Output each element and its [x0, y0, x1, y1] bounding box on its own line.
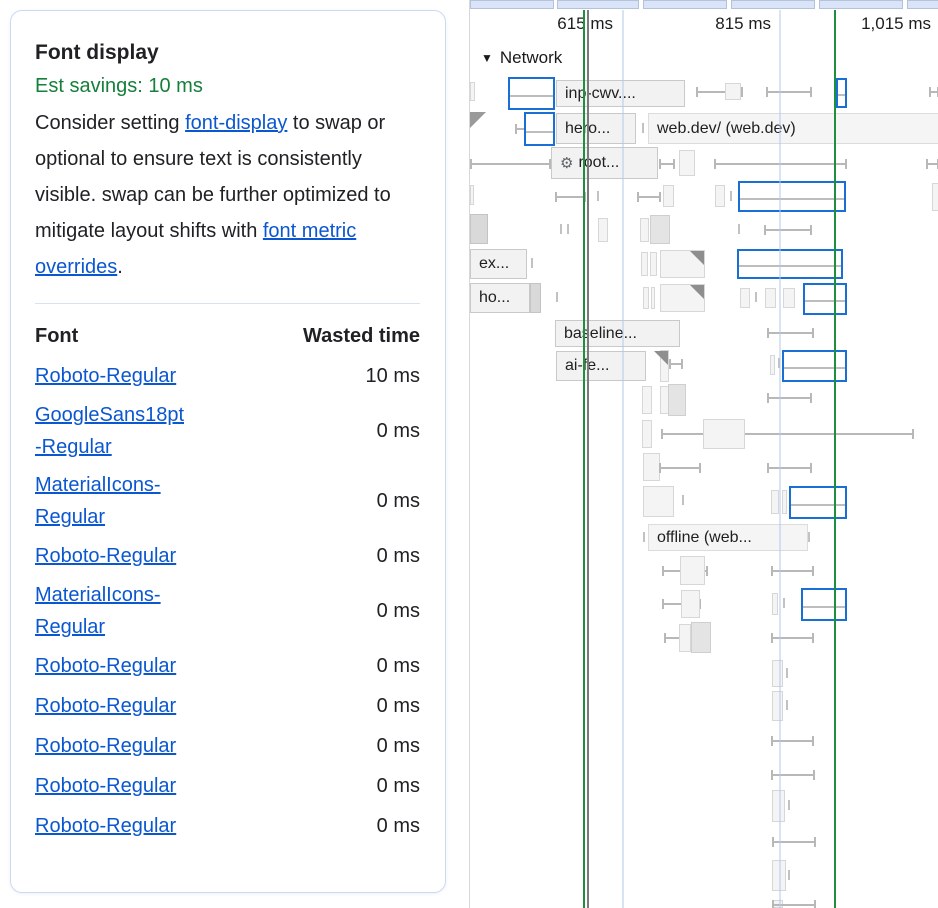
- font-name-link[interactable]: Roboto-Regular: [35, 775, 176, 797]
- font-name-link[interactable]: MaterialIcons- Regular: [35, 584, 161, 638]
- request-label[interactable]: web.dev/ (web.dev): [648, 113, 938, 144]
- performance-timeline-track[interactable]: 615 ms815 ms1,015 ms ▼ Network inp-cwv..…: [469, 0, 938, 908]
- request-label-text: baseline...: [564, 325, 637, 343]
- network-tick: [786, 668, 788, 678]
- network-tick: [808, 532, 810, 542]
- wasted-time-value: 0 ms: [377, 420, 420, 443]
- wasted-time-value: 0 ms: [377, 655, 420, 678]
- whisker-cap: [926, 159, 928, 169]
- network-request-bar[interactable]: [643, 486, 674, 517]
- whisker-cap: [771, 736, 773, 746]
- font-table-row: Roboto-Regular10 ms: [35, 356, 420, 396]
- insight-description: Consider setting font-display to swap or…: [35, 105, 420, 285]
- whisker-cap: [767, 463, 769, 473]
- font-name-link[interactable]: Roboto-Regular: [35, 735, 176, 757]
- network-request-bar[interactable]: [703, 419, 745, 449]
- network-tick: [755, 292, 757, 302]
- request-label[interactable]: hero...: [556, 113, 636, 144]
- network-request-bar[interactable]: [643, 287, 649, 309]
- request-label[interactable]: offline (web...: [648, 524, 808, 551]
- whisker-cap: [812, 736, 814, 746]
- network-request-bar[interactable]: [470, 214, 488, 244]
- request-label[interactable]: ai-fe...: [556, 351, 646, 381]
- request-duration-line: [805, 300, 845, 302]
- font-table-row: GoogleSans18pt -Regular0 ms: [35, 396, 420, 466]
- overview-strip-box: [557, 0, 639, 9]
- whisker-cap: [681, 359, 683, 369]
- font-name-link[interactable]: Roboto-Regular: [35, 365, 176, 387]
- network-request-whisker[interactable]: [768, 332, 813, 334]
- request-label[interactable]: ⚙root...: [551, 147, 658, 179]
- whisker-cap: [845, 159, 847, 169]
- whisker-cap: [661, 429, 663, 439]
- font-column-header: Font: [35, 316, 78, 356]
- highlighted-request-box[interactable]: [836, 78, 847, 108]
- network-request-bar[interactable]: [772, 593, 778, 615]
- font-name-link[interactable]: GoogleSans18pt -Regular: [35, 404, 184, 458]
- whisker-cap: [810, 393, 812, 403]
- collapse-triangle-icon[interactable]: ▼: [481, 51, 493, 65]
- performance-marker-line: [834, 10, 836, 908]
- whisker-cap: [767, 328, 769, 338]
- network-tick: [597, 191, 599, 201]
- whisker-cap: [706, 566, 708, 576]
- network-request-whisker[interactable]: [765, 229, 811, 231]
- network-request-whisker[interactable]: [471, 163, 550, 165]
- whisker-cap: [772, 900, 774, 908]
- network-request-whisker[interactable]: [662, 433, 913, 435]
- whisker-cap: [662, 566, 664, 576]
- network-tick: [783, 598, 785, 608]
- time-gridline: [622, 10, 624, 908]
- network-request-bar[interactable]: [932, 183, 938, 211]
- network-tick: [643, 532, 645, 542]
- ruler-time-label: 815 ms: [715, 14, 771, 34]
- gear-icon: ⚙: [560, 154, 573, 172]
- network-request-bar[interactable]: [650, 215, 670, 244]
- network-track-label: Network: [500, 48, 562, 68]
- font-table-row: Roboto-Regular0 ms: [35, 536, 420, 576]
- network-request-bar[interactable]: [530, 283, 541, 313]
- request-label-text: ex...: [479, 255, 509, 273]
- network-request-bar[interactable]: [660, 284, 705, 312]
- warning-corner-icon: [690, 251, 704, 265]
- description-text: .: [117, 256, 123, 278]
- wasted-time-value: 0 ms: [377, 815, 420, 838]
- network-track-header[interactable]: ▼ Network: [481, 48, 562, 68]
- whisker-cap: [771, 633, 773, 643]
- network-request-bar[interactable]: [640, 218, 649, 242]
- whisker-cap: [637, 192, 639, 202]
- network-request-bar[interactable]: [660, 350, 669, 382]
- whisker-cap: [555, 192, 557, 202]
- clipped-request-triangle: [470, 112, 486, 128]
- network-request-bar[interactable]: [725, 83, 741, 100]
- divider: [35, 303, 420, 304]
- whisker-cap: [673, 159, 675, 169]
- highlighted-request-box[interactable]: [737, 249, 843, 279]
- whisker-cap: [699, 463, 701, 473]
- network-request-bar[interactable]: [715, 185, 725, 207]
- overview-strip-box: [907, 0, 938, 9]
- network-request-bar[interactable]: [668, 384, 686, 416]
- warning-corner-icon: [654, 351, 668, 365]
- whisker-cap: [812, 633, 814, 643]
- request-duration-line: [526, 131, 553, 133]
- whisker-cap: [659, 192, 661, 202]
- whisker-cap: [812, 328, 814, 338]
- font-table-row: MaterialIcons- Regular0 ms: [35, 576, 420, 646]
- whisker-cap: [772, 837, 774, 847]
- overview-strip-box: [731, 0, 815, 9]
- whisker-cap: [814, 900, 816, 908]
- request-label-text: web.dev/ (web.dev): [657, 120, 796, 138]
- overview-strip-box: [643, 0, 727, 9]
- network-request-bar[interactable]: [681, 590, 700, 618]
- network-request-bar[interactable]: [642, 386, 652, 414]
- network-request-bar[interactable]: [642, 420, 652, 448]
- highlighted-request-box[interactable]: [782, 350, 847, 382]
- whisker-cap: [714, 159, 716, 169]
- network-request-bar[interactable]: [650, 252, 657, 276]
- font-name-link[interactable]: Roboto-Regular: [35, 695, 176, 717]
- font-display-insight-card: Font display Est savings: 10 ms Consider…: [10, 10, 446, 893]
- network-request-whisker[interactable]: [660, 163, 674, 165]
- network-tick: [786, 700, 788, 710]
- network-request-whisker[interactable]: [660, 467, 700, 469]
- font-table-header: Font Wasted time: [35, 316, 420, 356]
- font-table-row: Roboto-Regular0 ms: [35, 766, 420, 806]
- network-request-bar[interactable]: [663, 185, 674, 207]
- request-label-text: inp-cwv....: [565, 85, 636, 103]
- wasted-time-value: 0 ms: [377, 490, 420, 513]
- request-label[interactable]: inp-cwv....: [556, 80, 685, 107]
- font-table-row: MaterialIcons- Regular0 ms: [35, 466, 420, 536]
- request-duration-line: [803, 606, 845, 608]
- whisker-cap: [929, 87, 931, 97]
- highlighted-request-box[interactable]: [789, 486, 847, 519]
- network-request-whisker[interactable]: [638, 196, 660, 198]
- network-request-whisker[interactable]: [768, 397, 811, 399]
- network-request-bar[interactable]: [771, 490, 779, 514]
- whisker-cap: [696, 87, 698, 97]
- request-duration-line: [739, 265, 841, 267]
- network-request-whisker[interactable]: [767, 91, 811, 93]
- network-request-bar[interactable]: [598, 218, 608, 242]
- whisker-cap: [741, 87, 743, 97]
- whisker-cap: [764, 225, 766, 235]
- request-duration-line: [838, 94, 845, 96]
- wasted-time-value: 0 ms: [377, 545, 420, 568]
- highlighted-request-box[interactable]: [508, 77, 555, 110]
- whisker-cap: [659, 463, 661, 473]
- wasted-time-value: 10 ms: [366, 365, 420, 388]
- whisker-cap: [813, 770, 815, 780]
- whisker-cap: [659, 159, 661, 169]
- timestamp-marker-line: [587, 10, 589, 908]
- wasted-time-column-header: Wasted time: [303, 316, 420, 356]
- whisker-cap: [515, 124, 517, 134]
- network-request-bar[interactable]: [772, 691, 783, 721]
- whisker-cap: [810, 463, 812, 473]
- whisker-cap: [912, 429, 914, 439]
- network-tick: [531, 258, 533, 268]
- network-request-bar[interactable]: [651, 287, 655, 309]
- font-table: Roboto-Regular10 msGoogleSans18pt -Regul…: [35, 356, 420, 846]
- network-request-bar[interactable]: [783, 288, 795, 308]
- font-table-row: Roboto-Regular0 ms: [35, 646, 420, 686]
- wasted-time-value: 0 ms: [377, 695, 420, 718]
- network-request-bar[interactable]: [643, 453, 660, 481]
- request-label[interactable]: ex...: [470, 249, 527, 279]
- wasted-time-value: 0 ms: [377, 775, 420, 798]
- devtools-performance-panel: Font display Est savings: 10 ms Consider…: [0, 0, 938, 908]
- network-request-bar[interactable]: [641, 252, 648, 276]
- font-table-row: Roboto-Regular0 ms: [35, 726, 420, 766]
- network-request-bar[interactable]: [470, 82, 475, 101]
- network-request-bar[interactable]: [660, 250, 705, 278]
- whisker-cap: [814, 837, 816, 847]
- request-duration-line: [740, 198, 844, 200]
- whisker-cap: [771, 770, 773, 780]
- network-tick: [730, 191, 732, 201]
- network-tick: [738, 224, 740, 234]
- network-request-whisker[interactable]: [556, 196, 585, 198]
- ruler-time-label: 615 ms: [557, 14, 613, 34]
- whisker-cap: [767, 393, 769, 403]
- network-request-bar[interactable]: [470, 185, 474, 205]
- insight-title: Font display: [35, 37, 420, 69]
- description-text: Consider setting: [35, 112, 185, 134]
- highlighted-request-box[interactable]: [801, 588, 847, 621]
- network-request-bar[interactable]: [691, 622, 711, 653]
- network-request-whisker[interactable]: [768, 467, 811, 469]
- ruler-time-label: 1,015 ms: [861, 14, 931, 34]
- warning-corner-icon: [690, 285, 704, 299]
- font-name-link[interactable]: Roboto-Regular: [35, 655, 176, 677]
- font-table-row: Roboto-Regular0 ms: [35, 806, 420, 846]
- network-tick: [560, 224, 562, 234]
- whisker-cap: [766, 87, 768, 97]
- wasted-time-value: 0 ms: [377, 600, 420, 623]
- overview-strip-box: [819, 0, 903, 9]
- estimated-savings: Est savings: 10 ms: [35, 69, 420, 103]
- font-name-link[interactable]: Roboto-Regular: [35, 815, 176, 837]
- performance-marker-line: [583, 10, 585, 908]
- network-tick: [788, 800, 790, 810]
- request-label-text: offline (web...: [657, 529, 752, 547]
- request-duration-line: [510, 95, 553, 97]
- highlighted-request-box[interactable]: [803, 283, 847, 315]
- whisker-cap: [771, 566, 773, 576]
- whisker-cap: [662, 599, 664, 609]
- network-request-bar[interactable]: [772, 660, 783, 687]
- network-request-bar[interactable]: [765, 288, 776, 308]
- network-request-bar[interactable]: [782, 490, 787, 514]
- font-name-link[interactable]: MaterialIcons- Regular: [35, 474, 161, 528]
- wasted-time-value: 0 ms: [377, 735, 420, 758]
- network-tick: [642, 123, 644, 133]
- request-label[interactable]: ho...: [470, 283, 530, 313]
- highlighted-request-box[interactable]: [524, 112, 555, 146]
- whisker-cap: [669, 359, 671, 369]
- network-tick: [567, 224, 569, 234]
- whisker-cap: [664, 633, 666, 643]
- description-link[interactable]: font-display: [185, 112, 287, 134]
- whisker-cap: [810, 87, 812, 97]
- network-request-bar[interactable]: [680, 556, 705, 585]
- network-tick: [556, 292, 558, 302]
- network-request-bar[interactable]: [770, 355, 775, 375]
- request-label[interactable]: baseline...: [555, 320, 680, 347]
- whisker-cap: [470, 159, 472, 169]
- font-name-link[interactable]: Roboto-Regular: [35, 545, 176, 567]
- network-tick: [682, 495, 684, 505]
- whisker-cap: [812, 566, 814, 576]
- network-tick: [788, 870, 790, 880]
- request-label-text: ho...: [479, 289, 510, 307]
- overview-strip-box: [470, 0, 554, 9]
- whisker-cap: [810, 225, 812, 235]
- network-request-bar[interactable]: [679, 150, 695, 176]
- time-gridline: [779, 10, 781, 908]
- font-table-row: Roboto-Regular0 ms: [35, 686, 420, 726]
- network-request-bar[interactable]: [740, 288, 750, 308]
- highlighted-request-box[interactable]: [738, 181, 846, 212]
- network-request-bar[interactable]: [679, 624, 691, 652]
- request-duration-line: [791, 504, 845, 506]
